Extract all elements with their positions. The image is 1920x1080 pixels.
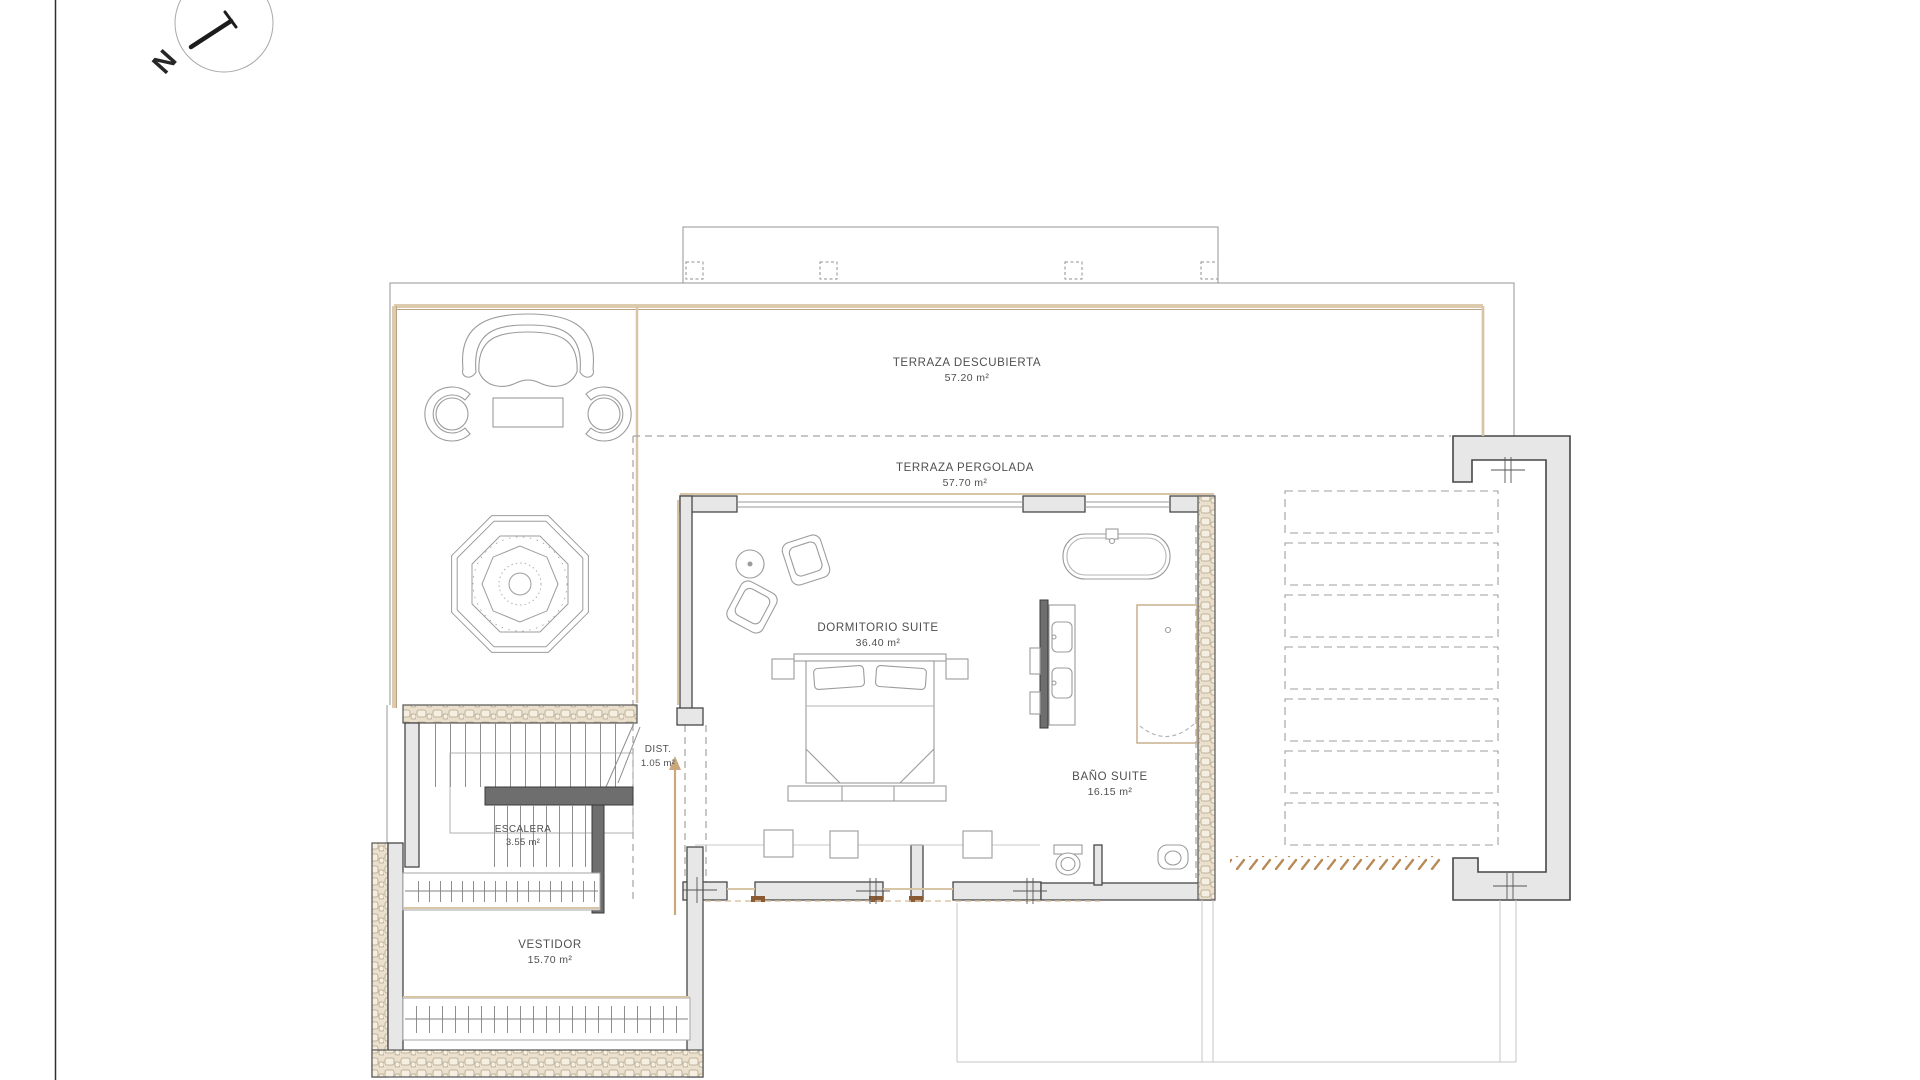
bathtub	[1063, 534, 1170, 579]
louver-hatch-row	[1230, 856, 1442, 870]
bathtub-faucet-dot	[1110, 539, 1115, 544]
wall-right-stone	[1198, 496, 1215, 900]
jacuzzi	[452, 516, 589, 653]
floor-plan-drawing: N	[0, 0, 1920, 1080]
stairs-landing-wall	[485, 787, 633, 805]
lower-floor-outline	[957, 900, 1516, 1062]
vestidor-outer-left	[372, 843, 388, 1077]
north-compass: N	[146, 0, 273, 80]
pouf	[963, 831, 992, 858]
shower-enclosure	[1137, 605, 1197, 743]
vestidor-right-wall	[687, 847, 703, 1077]
pergola-post	[1201, 262, 1218, 279]
armchair-seat	[436, 398, 468, 430]
terrace-sofa-set	[425, 314, 631, 441]
area-bano-suite: 16.15 m²	[1088, 786, 1133, 798]
vestidor-inner-left	[388, 843, 403, 1052]
tv-console	[1030, 648, 1040, 674]
stair-treads-lower	[485, 805, 592, 867]
bathroom-fixtures	[1049, 529, 1197, 875]
stair-treads-upper	[424, 723, 620, 787]
label-escalera: ESCALERA	[495, 824, 552, 835]
shower-drain	[1166, 628, 1171, 633]
area-vestidor: 15.70 m²	[528, 954, 573, 966]
floor-plan-sheet: N	[0, 0, 1920, 1080]
wall-pier	[911, 845, 923, 900]
label-bano-suite: BAÑO SUITE	[1072, 770, 1148, 783]
wall-bath-bottom	[1041, 883, 1214, 900]
pillow	[813, 665, 864, 689]
shower-door-swing	[1140, 724, 1194, 737]
pergola-post	[1065, 262, 1082, 279]
pouf	[830, 831, 858, 858]
compass-north-label: N	[146, 44, 183, 80]
label-vestidor: VESTIDOR	[518, 939, 582, 951]
survey-cross	[1491, 457, 1525, 483]
label-terraza-descubierta: TERRAZA DESCUBIERTA	[893, 357, 1041, 369]
area-escalera: 3.55 m²	[506, 837, 540, 848]
pergola-slats	[1285, 491, 1498, 845]
wall-left-cap	[677, 708, 703, 725]
label-dormitorio-suite: DORMITORIO SUITE	[817, 622, 938, 634]
pergola-post	[686, 262, 703, 279]
vestidor-outer-bottom	[372, 1050, 703, 1077]
bed-headboard	[794, 654, 946, 661]
pillow	[875, 665, 926, 689]
wall-left	[680, 496, 692, 709]
lounge-chair	[780, 533, 832, 587]
bed-bench	[788, 786, 946, 801]
toilet-bowl	[1056, 853, 1080, 875]
wall-top-mid	[1023, 496, 1085, 512]
area-dormitorio-suite: 36.40 m²	[856, 637, 901, 649]
nightstand	[772, 659, 794, 679]
sink-faucet	[1052, 681, 1056, 685]
tv-console	[1030, 692, 1040, 714]
lounge-chair	[724, 578, 780, 636]
area-dist: 1.05 m²	[641, 758, 675, 769]
right-structure	[1453, 306, 1570, 900]
bedroom-furniture	[724, 533, 1040, 858]
stairs-top-wall	[403, 705, 637, 723]
wall-bath-left-dark	[1040, 600, 1048, 728]
pergola-post	[820, 262, 837, 279]
area-terraza-descubierta: 57.20 m²	[945, 372, 990, 384]
curved-sofa-seat	[479, 332, 577, 386]
bathtub-faucet	[1106, 529, 1118, 539]
armchair-seat	[588, 398, 620, 430]
sink-faucet	[1052, 635, 1056, 639]
coffee-table	[493, 398, 563, 427]
pouf	[764, 830, 793, 857]
label-dist: DIST.	[645, 744, 671, 755]
area-terraza-pergolada: 57.70 m²	[943, 477, 988, 489]
compass-circle	[175, 0, 273, 72]
nightstand	[946, 659, 968, 679]
side-table-center	[748, 562, 752, 566]
stairs-left-wall	[405, 723, 419, 867]
label-terraza-pergolada: TERRAZA PERGOLADA	[896, 462, 1034, 474]
c-wall	[1453, 436, 1570, 900]
wall-bath-partition	[1094, 845, 1102, 885]
